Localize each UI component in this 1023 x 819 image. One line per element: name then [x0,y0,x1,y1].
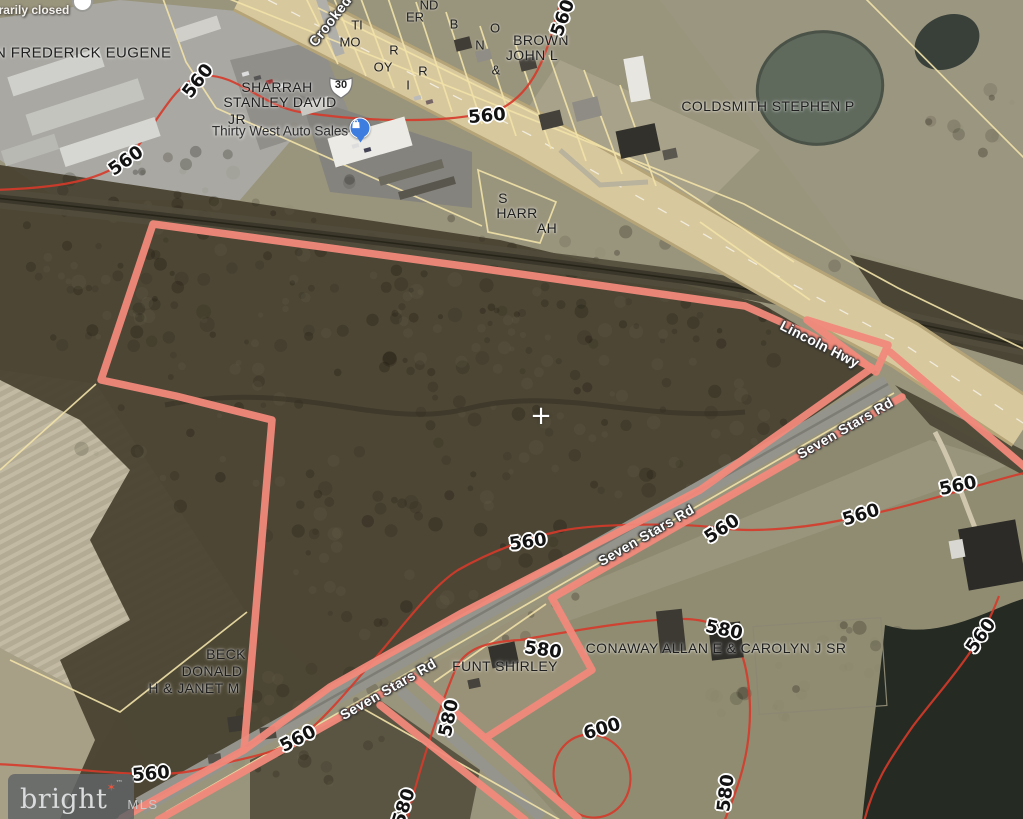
contour-elevation-label: 560 [962,615,1001,658]
owner-parcel-letter-fragment: O [490,21,500,36]
logo-brand: bright✶™ [20,786,107,813]
road-name-label: Lincoln Hwy [778,317,863,371]
owner-parcel-label: H & JANET M [148,680,239,696]
owner-parcel-label: BECK [206,646,246,662]
contour-elevation-label: 580 [388,786,420,819]
contour-elevation-label: 560 [937,472,978,500]
owner-parcel-label: CONAWAY ALLAN E & CAROLYN J SR [586,640,847,656]
owner-parcel-label: S [498,190,508,206]
poi-label[interactable]: Thirty West Auto Sales [212,124,348,139]
contour-elevation-label: 560 [547,0,580,39]
bright-mls-logo: bright✶™ MLS [8,774,134,819]
contour-elevation-label: 560 [701,510,744,548]
contour-elevation-label: 560 [276,721,319,757]
route-number: 30 [328,79,354,91]
contour-elevation-label: 560 [131,762,170,786]
owner-parcel-label: DONALD [182,663,243,679]
contour-elevation-label: 580 [435,697,463,738]
logo-suffix: MLS [127,797,158,812]
owner-parcel-label: JOHN L [506,47,558,63]
owner-parcel-label: COLDSMITH STEPHEN P [681,98,854,114]
contour-elevation-label: 560 [178,60,218,103]
owner-parcel-letter-fragment: & [492,63,501,78]
contour-elevation-label: 560 [508,529,548,555]
owner-parcel-label: STANLEY DAVID [223,94,336,110]
contour-elevation-label: 580 [713,773,738,813]
owner-parcel-letter-fragment: TI [351,18,363,33]
contour-elevation-label: 600 [581,714,623,745]
owner-parcel-label: AN FREDERICK EUGENE [0,45,171,62]
owner-parcel-letter-fragment: R [418,64,427,79]
poi-marker[interactable] [350,118,371,139]
road-name-label: Seven Stars Rd [337,655,439,723]
owner-parcel-label: AH [537,220,557,236]
contour-elevation-label: 560 [840,499,882,530]
center-crosshair: + [530,401,552,431]
owner-parcel-letter-fragment: R [389,43,398,58]
owner-parcel-letter-fragment: MO [340,35,361,50]
map-canvas[interactable]: AN FREDERICK EUGENESHARRAHSTANLEY DAVIDJ… [0,0,1023,819]
owner-parcel-letter-fragment: N [475,38,484,53]
owner-parcel-letter-fragment: I [406,78,410,93]
owner-parcel-letter-fragment: OY [374,60,393,75]
contour-elevation-label: 560 [467,104,506,128]
poi-status-label: temporarily closed [0,3,69,17]
road-name-label: Seven Stars Rd [595,501,697,569]
owner-parcel-letter-fragment: ND [420,0,439,13]
shopping-bag-icon [351,119,362,130]
owner-parcel-letter-fragment: B [450,17,459,32]
contour-elevation-label: 560 [105,142,148,181]
road-name-label: Seven Stars Rd [794,394,896,462]
map-labels: AN FREDERICK EUGENESHARRAHSTANLEY DAVIDJ… [0,0,1023,819]
route-shield-us30: 30 [328,75,354,99]
owner-parcel-label: SHARRAH [241,79,312,95]
owner-parcel-label: HARR [496,205,537,221]
